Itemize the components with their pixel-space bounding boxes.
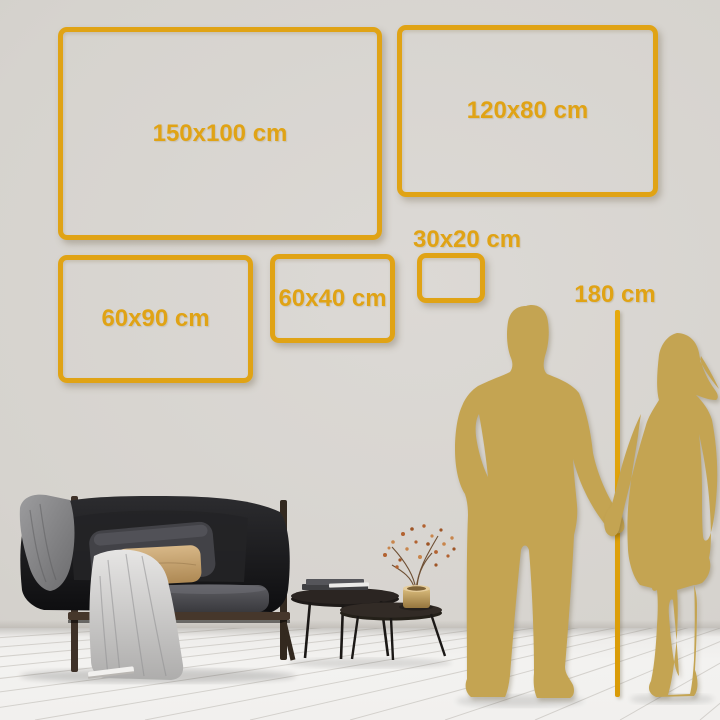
wall-art-size-guide-scene: 150x100 cm 120x80 cm 60x90 cm 60x40 cm 3… [0, 0, 720, 720]
man-silhouette [455, 305, 624, 698]
couple-silhouettes [0, 0, 720, 720]
woman-silhouette [604, 333, 719, 697]
